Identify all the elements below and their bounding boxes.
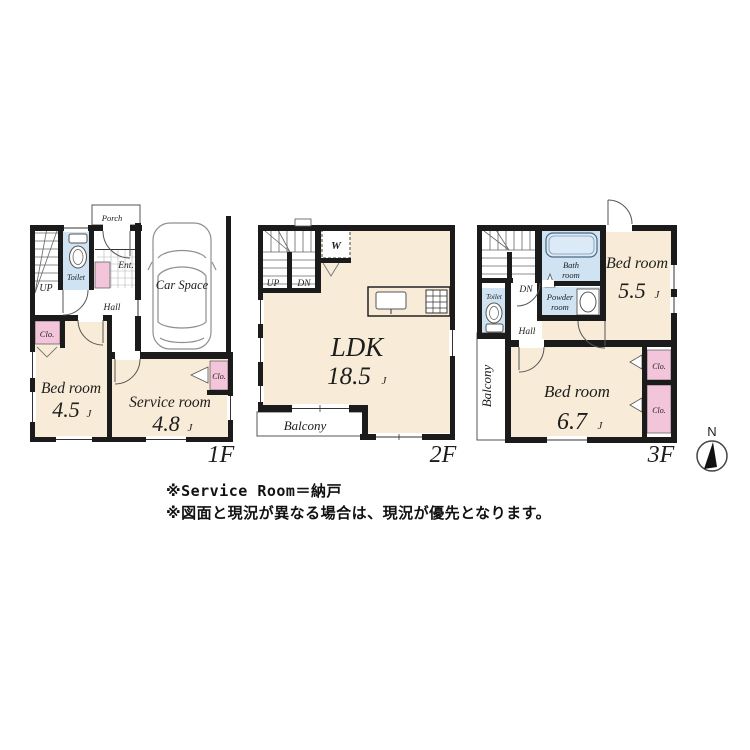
f3-closet-a-label: Clo. [652, 362, 666, 371]
f3-corridor [542, 321, 606, 340]
f1-bedroom-label: Bed room [41, 380, 101, 397]
f1-service-area: 4.8 [152, 411, 180, 436]
f2-balcony-label: Balcony [284, 418, 327, 433]
f3-sink-icon [577, 289, 599, 315]
f2-stairs-dn-label: DN [296, 279, 311, 289]
floor-2f: UP DN W LDK 18.5 J Balcony 2F [257, 219, 457, 468]
footnote-disclaimer: ※図面と現況が異なる場合は、現況が優先となります。 [166, 502, 551, 524]
f1-entrance-label: Ent. [117, 261, 134, 271]
f2-stairs-up-label: UP [267, 279, 280, 289]
floor-3f: DN Toilet Bath room Powder room Hall Bal… [477, 200, 678, 468]
f3-powder-label-1: Powder [546, 292, 574, 302]
f1-floor-label: 1F [208, 442, 235, 468]
f3-powder-label-2: room [551, 302, 569, 312]
floor-1f: UP Toilet Porch Ent. Hall Car Space Clo.… [29, 205, 235, 468]
footnote-service-room: ※Service Room＝納戸 [166, 480, 551, 502]
f3-stairs-dn-label: DN [518, 285, 533, 295]
floor-plan-drawing: UP Toilet Porch Ent. Hall Car Space Clo.… [0, 0, 750, 750]
f2-bay-window [295, 219, 311, 226]
f3-bathtub-icon [546, 233, 597, 257]
f3-bath-label-1: Bath [563, 260, 579, 270]
f3-bedroom-b-label: Bed room [544, 382, 610, 401]
compass-north-label: N [707, 424, 716, 439]
f1-stairs-label: UP [39, 283, 52, 294]
f3-toilet-label: Toilet [486, 293, 503, 301]
f2-sink-icon [376, 292, 406, 309]
f1-closet-b-label: Clo. [212, 372, 226, 381]
f3-closet-b-label: Clo. [652, 406, 666, 415]
f1-toilet-icon [69, 234, 87, 268]
f2-stove-icon [426, 290, 447, 313]
f1-toilet-label: Toilet [67, 273, 86, 282]
f1-bedroom-area: 4.5 [52, 397, 80, 422]
f3-hall-label: Hall [518, 327, 536, 337]
f3-bath-label-2: room [562, 270, 580, 280]
footnotes: ※Service Room＝納戸 ※図面と現況が異なる場合は、現況が優先となりま… [166, 480, 551, 524]
f3-floor-label: 3F [647, 442, 675, 468]
f3-toilet-icon [486, 303, 503, 332]
f2-closet-w-label: W [331, 240, 342, 252]
f3-balcony-label: Balcony [479, 364, 494, 407]
floor-plan-page: UP Toilet Porch Ent. Hall Car Space Clo.… [0, 0, 750, 750]
f1-closet-a-label: Clo. [40, 329, 54, 339]
f3-bedroom-a-label: Bed room [606, 255, 668, 272]
f1-car-space-label: Car Space [156, 278, 209, 292]
f1-hall-label: Hall [103, 303, 121, 313]
f3-bedroom-b-area: 6.7 [557, 409, 588, 435]
f1-porch-label: Porch [101, 213, 122, 223]
f2-ldk-area: 18.5 [327, 363, 371, 390]
f1-service-label: Service room [129, 394, 211, 411]
f2-floor-label: 2F [430, 442, 457, 468]
compass: N [697, 424, 727, 471]
f1-entrance-mat [95, 262, 110, 288]
f3-bedroom-a-area: 5.5 [618, 278, 646, 303]
f2-ldk-label: LDK [330, 332, 386, 362]
